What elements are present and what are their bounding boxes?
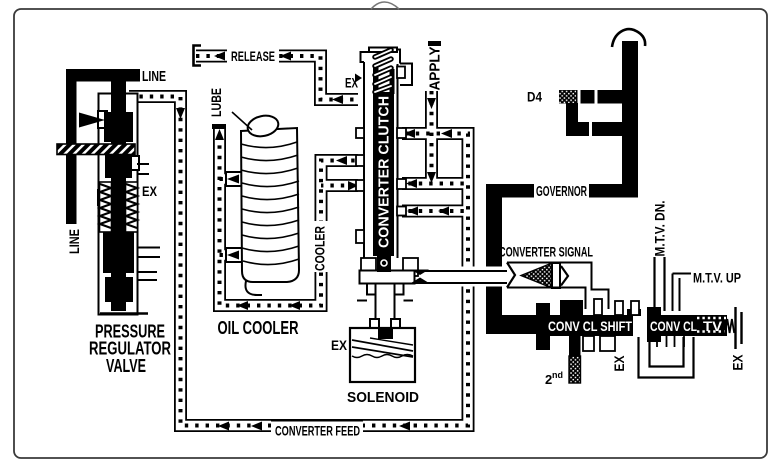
svg-text:EX: EX — [331, 337, 348, 353]
svg-text:nd: nd — [552, 370, 563, 380]
svg-text:GOVERNOR: GOVERNOR — [536, 184, 587, 200]
svg-text:LINE: LINE — [142, 68, 166, 85]
svg-text:D4: D4 — [527, 89, 542, 105]
svg-text:TV: TV — [703, 318, 723, 334]
svg-text:RELEASE: RELEASE — [231, 48, 275, 64]
svg-text:EX: EX — [730, 354, 746, 371]
svg-text:APPLY: APPLY — [427, 47, 444, 91]
svg-text:VALVE: VALVE — [106, 355, 146, 376]
svg-text:LINE: LINE — [66, 229, 82, 254]
svg-text:EX: EX — [142, 183, 158, 199]
svg-text:M.T.V. UP: M.T.V. UP — [693, 271, 741, 286]
svg-text:COOLER: COOLER — [312, 226, 328, 271]
svg-text:CONVERTER CLUTCH: CONVERTER CLUTCH — [376, 96, 393, 248]
svg-text:OIL COOLER: OIL COOLER — [218, 318, 299, 338]
svg-text:EX: EX — [611, 355, 627, 372]
svg-text:M.T.V. DN.: M.T.V. DN. — [653, 201, 668, 257]
svg-text:CONVERTER FEED: CONVERTER FEED — [275, 424, 360, 439]
svg-text:CONVERTER SIGNAL: CONVERTER SIGNAL — [499, 244, 593, 260]
svg-text:CONV CL: CONV CL — [650, 318, 697, 334]
svg-text:SOLENOID: SOLENOID — [347, 390, 419, 406]
svg-text:CONV CL SHIFT: CONV CL SHIFT — [548, 318, 632, 334]
svg-text:LUBE: LUBE — [208, 88, 224, 117]
